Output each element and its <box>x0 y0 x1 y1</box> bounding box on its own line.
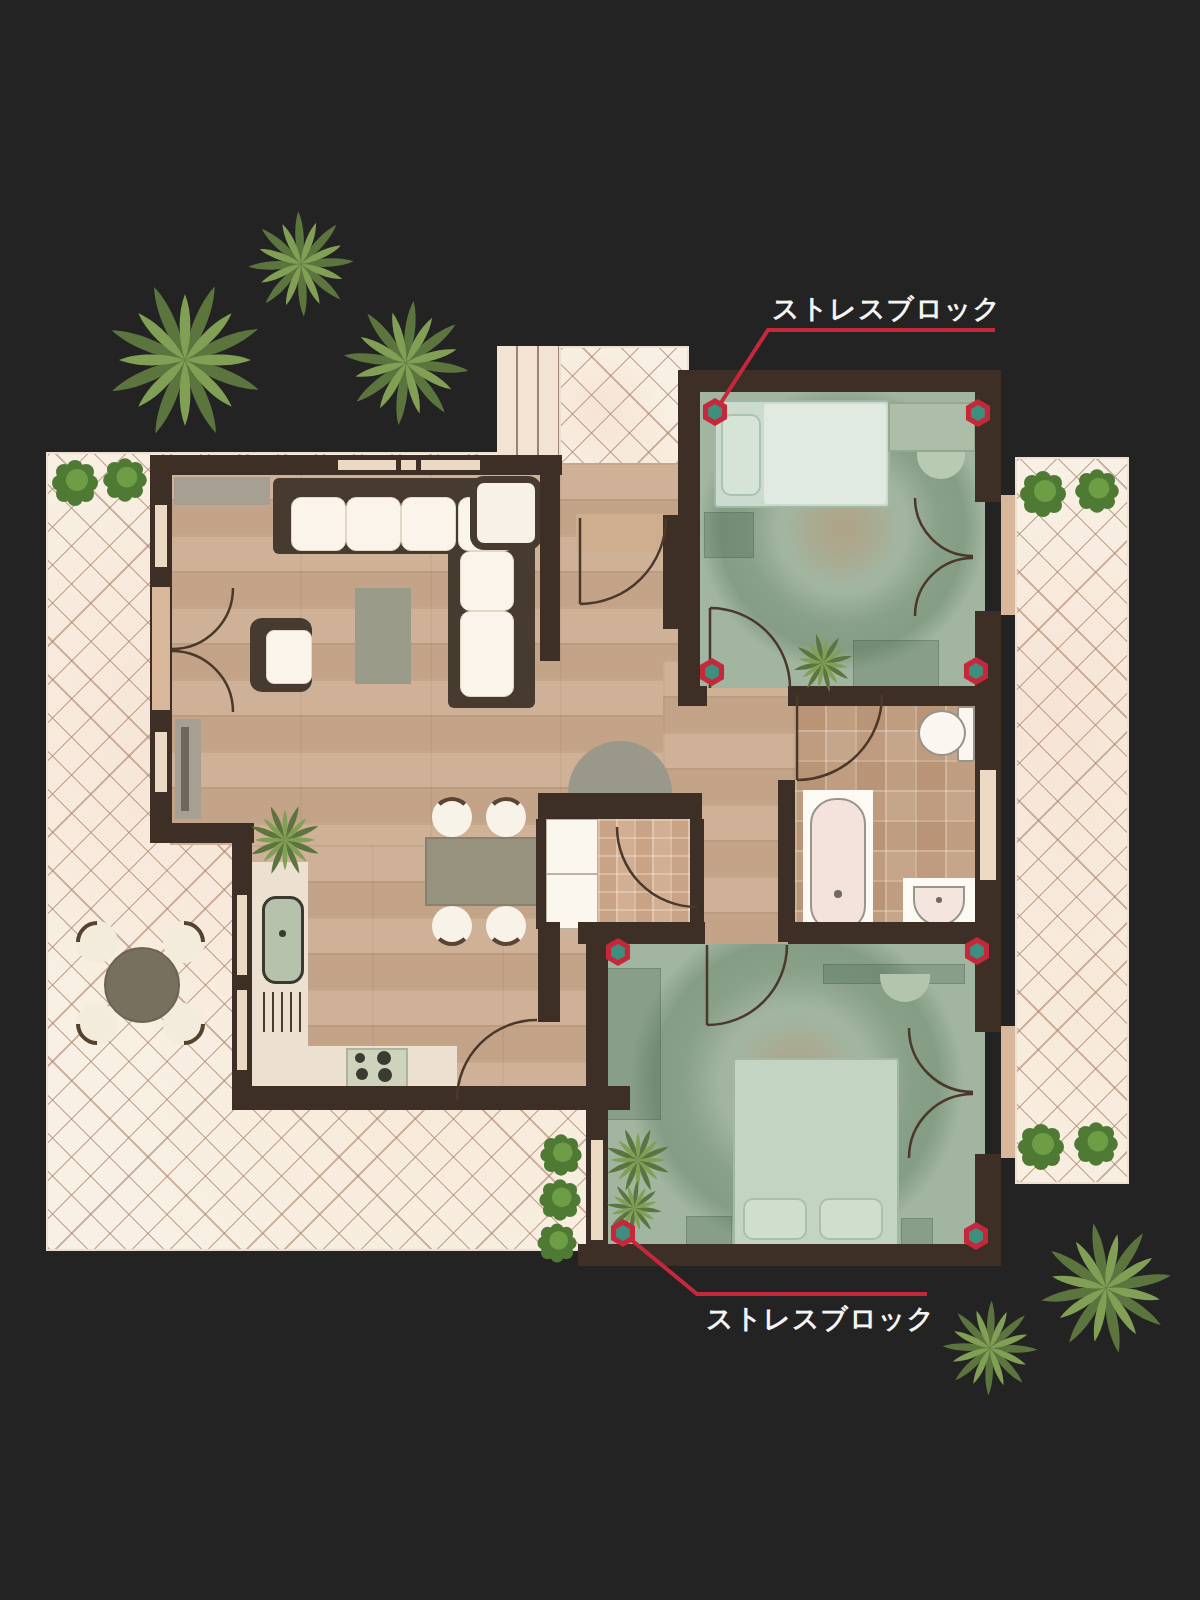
window <box>152 505 170 567</box>
basin-drain <box>936 897 942 903</box>
sofa-cushion <box>401 497 456 551</box>
sideboard <box>174 477 270 505</box>
wall <box>678 370 997 392</box>
wall <box>538 922 560 1022</box>
wall <box>975 1154 1001 1266</box>
toilet-bowl <box>918 710 966 756</box>
desk <box>888 402 976 452</box>
stove-burner <box>378 1068 392 1082</box>
window <box>234 895 250 975</box>
armchair-cushion <box>266 630 312 684</box>
dining-chair <box>486 906 526 946</box>
entry-step <box>576 514 666 552</box>
bed-pillow <box>743 1198 807 1240</box>
wall <box>778 780 795 942</box>
stove-burner <box>355 1053 365 1063</box>
window <box>152 732 170 792</box>
door-threshold <box>152 587 170 710</box>
wc-floor <box>598 819 690 929</box>
dining-chair <box>486 797 526 837</box>
stove-burner <box>356 1068 368 1080</box>
stove-burner <box>377 1051 391 1065</box>
storage-unit <box>546 819 598 929</box>
wall <box>678 370 700 692</box>
wall <box>788 922 997 944</box>
sink-faucet <box>279 930 286 937</box>
bathtub <box>810 798 866 932</box>
window <box>588 1140 606 1240</box>
kitchen-sink <box>262 896 304 984</box>
wall <box>540 475 560 661</box>
wall <box>578 1244 997 1266</box>
dining-chair <box>432 906 472 946</box>
corner-armchair <box>470 476 542 550</box>
dining-table <box>425 837 538 906</box>
coffee-table <box>355 588 411 684</box>
dish-rack <box>263 992 301 1032</box>
bed-pillow <box>819 1198 883 1240</box>
wall <box>232 1086 630 1110</box>
bathtub-drain <box>834 890 842 898</box>
stress-block-label-top: ストレスブロック <box>772 291 1001 327</box>
sofa-cushion <box>460 551 514 611</box>
wall <box>538 793 702 819</box>
wall <box>536 819 546 929</box>
patio-round-table <box>104 947 180 1023</box>
window <box>977 770 999 880</box>
window <box>234 990 250 1070</box>
nightstand <box>704 512 754 558</box>
stress-block-label-bottom: ストレスブロック <box>706 1301 935 1337</box>
sofa-cushion <box>460 611 514 697</box>
nightstand <box>901 1218 933 1246</box>
sofa-cushion <box>346 497 401 551</box>
storage-divider <box>547 873 597 875</box>
wall <box>975 370 1001 502</box>
dresser <box>853 640 939 688</box>
wall <box>678 686 707 706</box>
wall <box>690 819 704 922</box>
sofa-cushion <box>291 497 346 551</box>
door-threshold <box>1001 495 1015 615</box>
door-threshold <box>1001 1026 1015 1158</box>
bed-blanket <box>764 404 886 504</box>
bed-pillow <box>721 414 761 496</box>
radiator-slot <box>181 727 189 811</box>
dining-chair <box>432 797 472 837</box>
right-patio <box>1015 457 1129 1184</box>
window-mullion <box>416 460 421 470</box>
wall <box>150 823 254 843</box>
top-patio-deck <box>497 346 559 455</box>
window-mullion <box>396 460 401 470</box>
floor-plan-canvas: ストレスブロック ストレスブロック <box>0 0 1200 1600</box>
wall <box>788 686 997 706</box>
window <box>338 457 480 473</box>
